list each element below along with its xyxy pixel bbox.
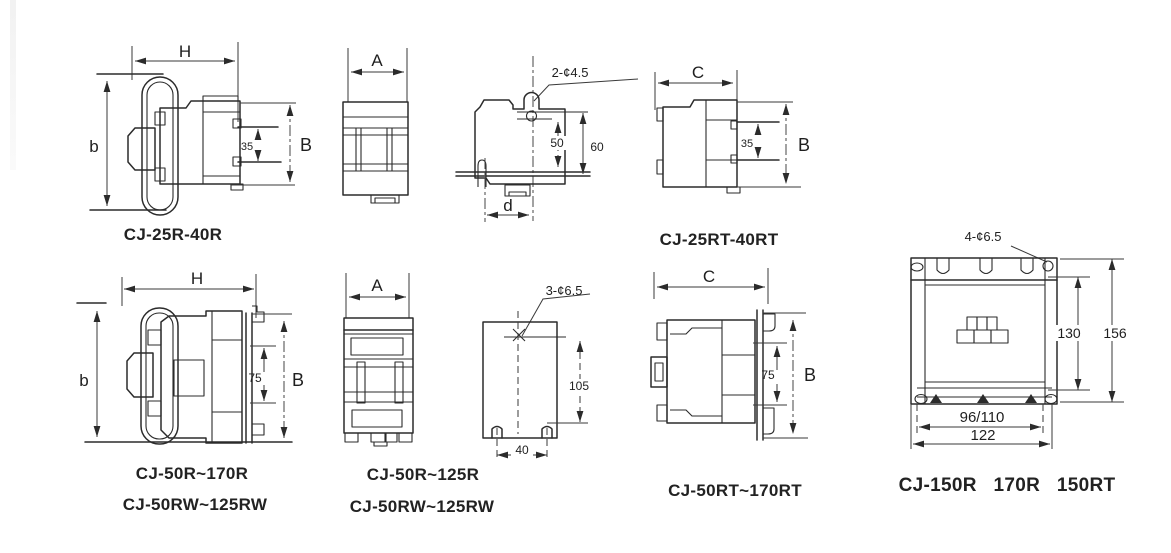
caption-cj50r-side-2: CJ-50RW~125RW xyxy=(123,496,268,515)
drawing-cj50r-mount-view: 3-¢6.5 105 40 xyxy=(483,283,592,461)
dim-label-a: A xyxy=(371,51,383,70)
drawing-cj50rt-side-view: C 75 B xyxy=(651,267,816,440)
dim-label-50: 50 xyxy=(550,136,564,150)
dim-label-122: 122 xyxy=(970,427,995,444)
dim-label-75: 75 xyxy=(761,368,775,382)
drawing-cj150r-front-view: 4-¢6.5 xyxy=(911,229,1133,449)
dim-label-130: 130 xyxy=(1057,325,1081,341)
drawing-cj25r-front-view: A xyxy=(343,48,408,203)
caption-cj50r-front-1: CJ-50R~125R xyxy=(367,466,479,485)
dim-label-35: 35 xyxy=(741,138,753,150)
dim-label-b-small: b xyxy=(89,137,98,156)
dim-label-b-cap: B xyxy=(292,370,304,390)
dim-label-b-cap: B xyxy=(300,135,312,155)
caption-cj25r: CJ-25R-40R xyxy=(124,226,222,245)
drawing-cj50r-side-view: H b 75 B xyxy=(77,269,304,444)
drawing-cj25rt-side-view: C 35 B xyxy=(655,63,810,193)
dim-label-h: H xyxy=(191,269,203,288)
dim-label-b-cap: B xyxy=(804,365,816,385)
dim-label-60: 60 xyxy=(590,140,604,154)
caption-cj50rt: CJ-50RT~170RT xyxy=(668,482,802,501)
dim-label-96-110: 96/110 xyxy=(960,409,1005,426)
dim-label-75: 75 xyxy=(248,371,262,385)
dim-label-d: d xyxy=(503,196,512,215)
caption-cj25rt: CJ-25RT-40RT xyxy=(660,231,779,250)
dim-label-h: H xyxy=(179,42,191,61)
hole-callout: 2-¢4.5 xyxy=(552,65,589,80)
contactor-dimension-sheet: H b 35 B xyxy=(0,0,1171,553)
drawing-cj50r-front-view: A xyxy=(344,273,413,446)
dim-label-b-cap: B xyxy=(798,135,810,155)
caption-cj50r-side-1: CJ-50R~170R xyxy=(136,465,248,484)
dim-label-40: 40 xyxy=(515,443,529,457)
dim-label-156: 156 xyxy=(1103,325,1127,341)
drawing-cj25r-side-view: H b 35 B xyxy=(89,42,312,215)
dim-label-a: A xyxy=(371,276,383,295)
dim-label-105: 105 xyxy=(569,379,589,393)
dim-label-35: 35 xyxy=(241,141,253,153)
caption-cj50r-front-2: CJ-50RW~125RW xyxy=(350,498,495,517)
dim-label-c: C xyxy=(703,267,715,286)
caption-cj150r: CJ-150R 170R 150RT xyxy=(899,476,1116,497)
hole-callout: 4-¢6.5 xyxy=(965,229,1002,244)
dim-label-c: C xyxy=(692,63,704,82)
dim-label-b-small: b xyxy=(79,371,88,390)
drawing-cj25r-mount-view: 2-¢4.5 50 60 d xyxy=(456,56,638,222)
